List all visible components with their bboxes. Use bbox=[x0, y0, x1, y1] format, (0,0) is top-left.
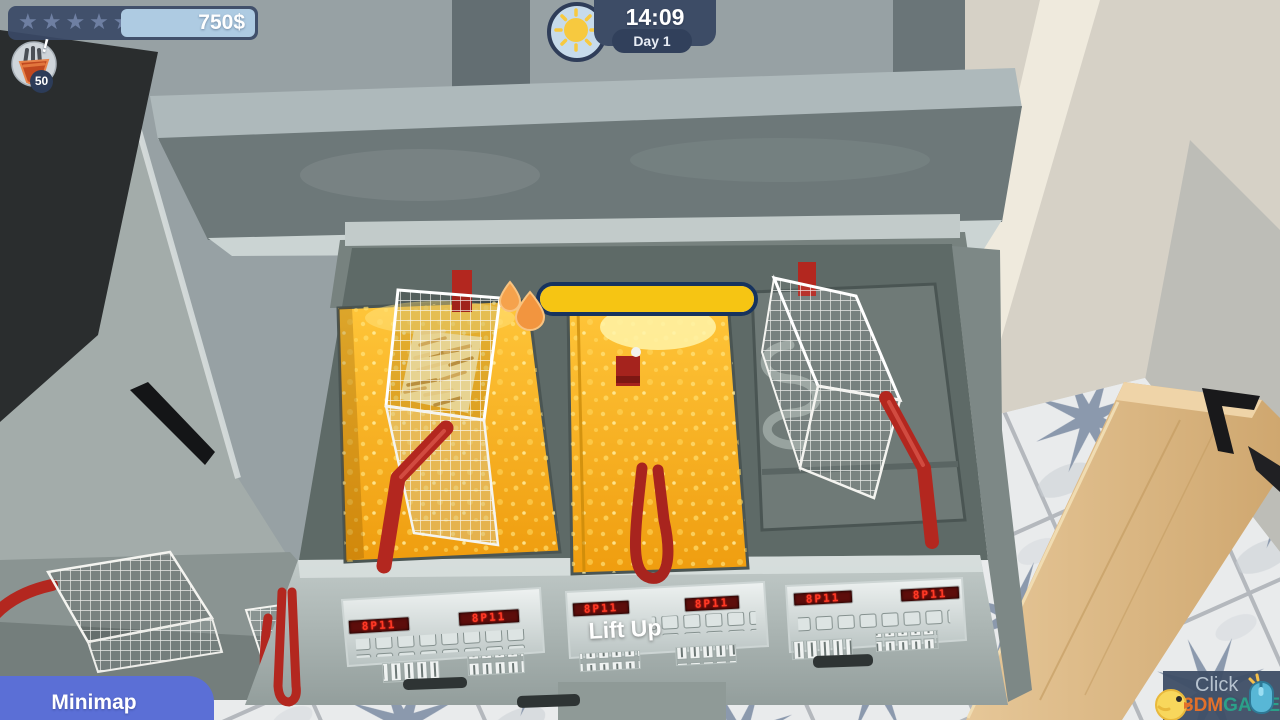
watermark: Click 3DMGAME bbox=[1163, 671, 1280, 720]
stock-count-badge: 50 bbox=[30, 70, 53, 93]
oil-vat-middle bbox=[568, 300, 748, 578]
day-display: Day 1 bbox=[612, 29, 692, 53]
kitchen-scene bbox=[0, 0, 1280, 720]
oil-drop-icon bbox=[494, 280, 550, 338]
money-display: 750$ bbox=[121, 9, 255, 37]
mouse-icon bbox=[1246, 673, 1276, 715]
chick-icon bbox=[1151, 683, 1193, 720]
minimap-button[interactable]: Minimap bbox=[0, 676, 214, 720]
time-display: 14:09 bbox=[594, 0, 716, 31]
fryer-led-display: 8P11 bbox=[572, 599, 631, 617]
frying-progress-fill bbox=[540, 286, 754, 312]
star-rating-icons: ★★★★★ bbox=[18, 8, 137, 38]
watermark-click-text: Click bbox=[1195, 674, 1238, 697]
frying-progress-bar bbox=[536, 282, 758, 316]
fryer-led-display: 8P11 bbox=[684, 595, 741, 613]
